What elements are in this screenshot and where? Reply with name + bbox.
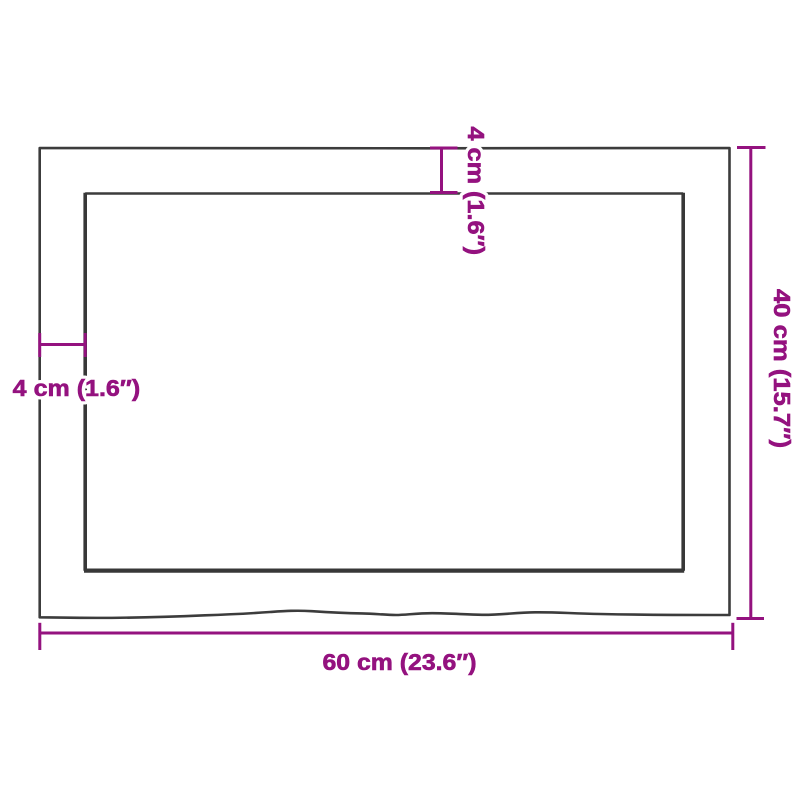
svg-text:60 cm (23.6″): 60 cm (23.6″) bbox=[323, 649, 477, 675]
svg-text:40 cm (15.7″): 40 cm (15.7″) bbox=[769, 289, 795, 448]
svg-text:4 cm (1.6″): 4 cm (1.6″) bbox=[13, 375, 141, 401]
svg-text:4 cm (1.6″): 4 cm (1.6″) bbox=[463, 127, 489, 256]
